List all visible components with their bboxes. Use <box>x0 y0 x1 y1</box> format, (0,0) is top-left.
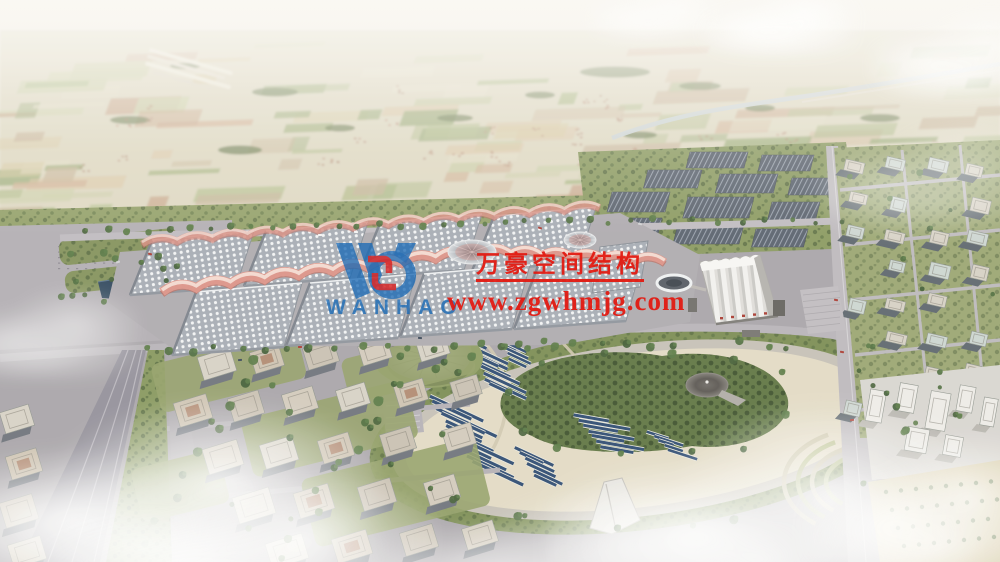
parking-lot <box>800 286 846 334</box>
aerial-render-scene: WANHAO 万豪空间结构 www.zgwhmjg.com <box>0 0 1000 562</box>
park-green-mound <box>500 352 788 452</box>
render-canvas <box>0 0 1000 562</box>
highrise-cluster <box>857 365 1000 480</box>
